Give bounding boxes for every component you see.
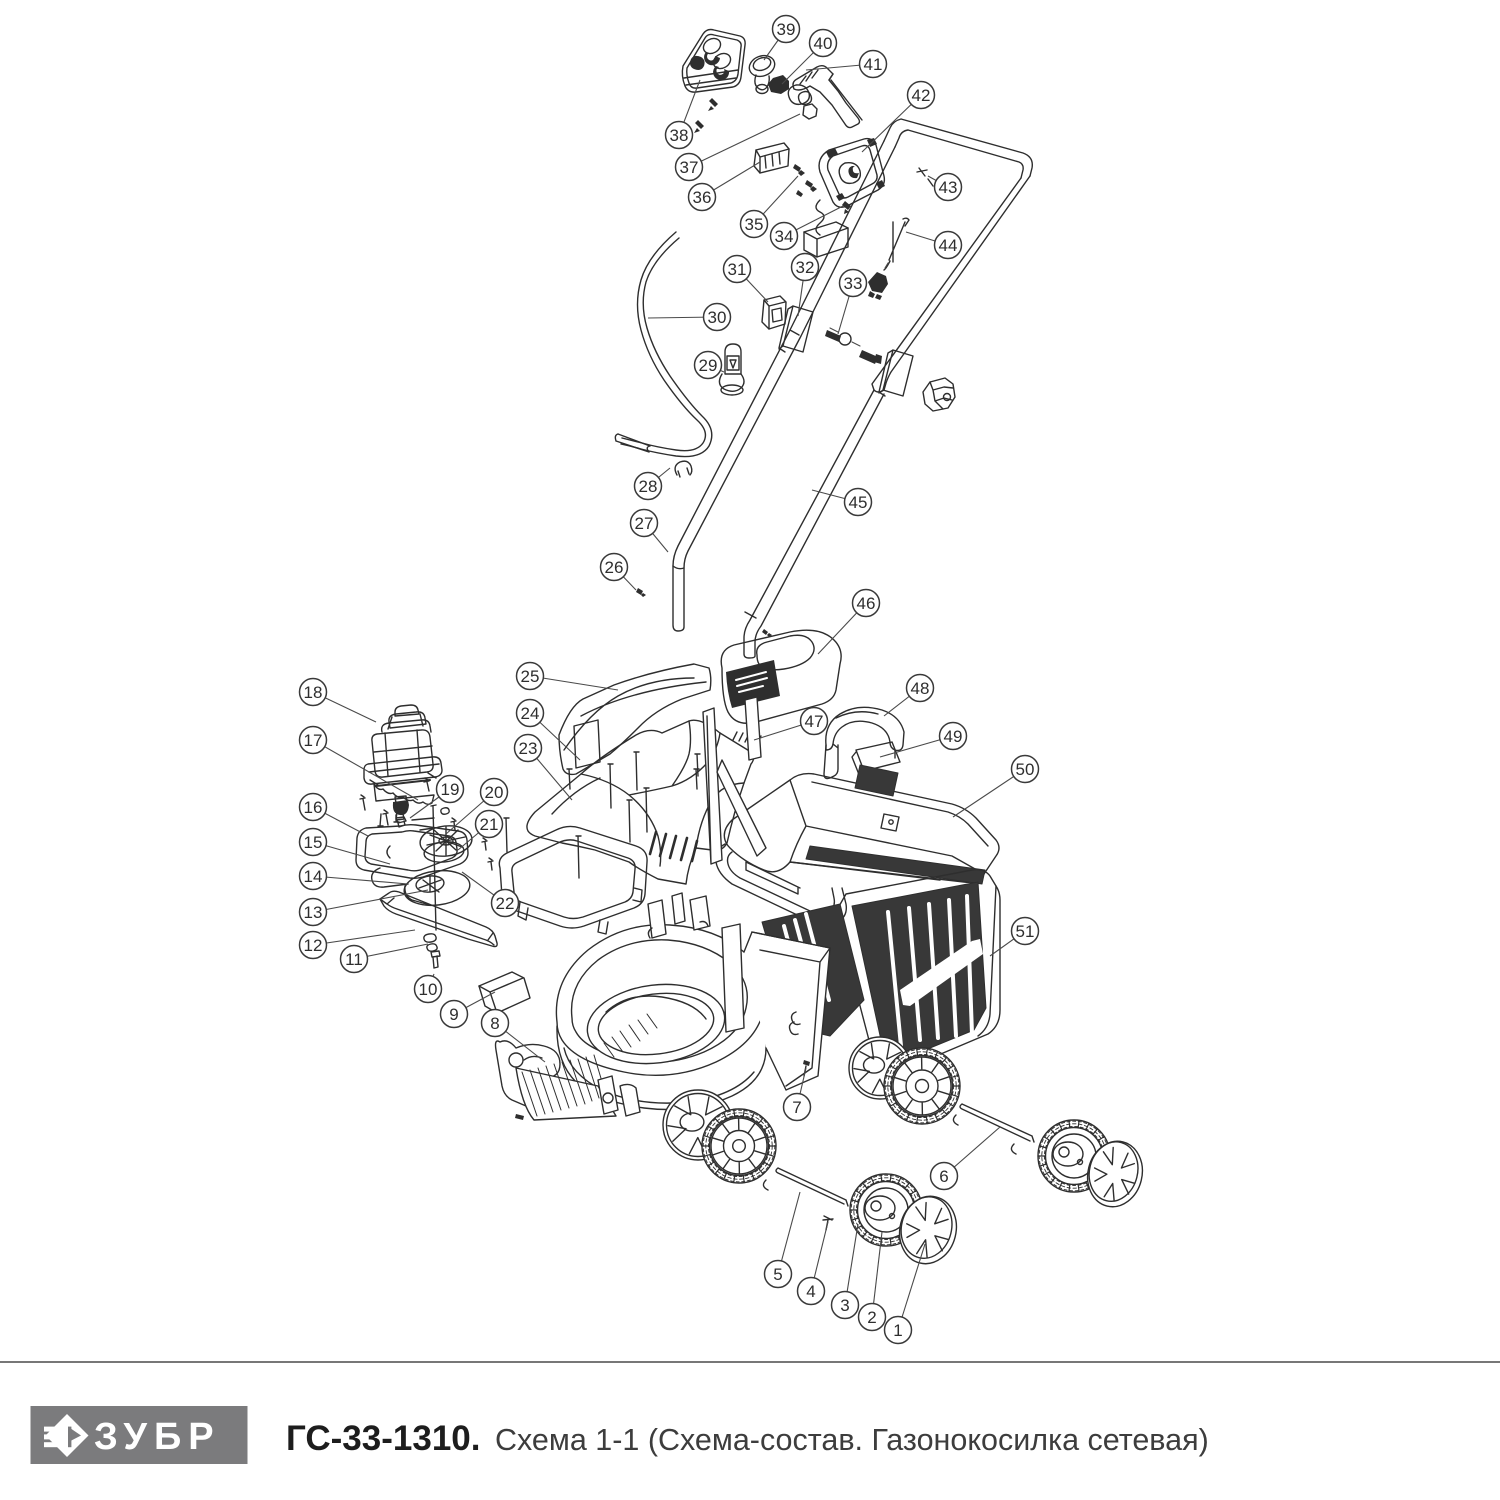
svg-text:43: 43 — [939, 178, 958, 197]
svg-text:4: 4 — [806, 1282, 815, 1301]
svg-text:47: 47 — [805, 712, 824, 731]
svg-text:24: 24 — [521, 704, 540, 723]
svg-text:15: 15 — [304, 833, 323, 852]
svg-text:36: 36 — [693, 188, 712, 207]
svg-text:45: 45 — [849, 493, 868, 512]
svg-text:ГС-33-1310. Схема 1-1 (Схема-с: ГС-33-1310. Схема 1-1 (Схема-состав. Газ… — [286, 1419, 1209, 1458]
svg-text:ЗУБР: ЗУБР — [94, 1416, 221, 1458]
svg-text:20: 20 — [485, 783, 504, 802]
svg-text:25: 25 — [521, 667, 540, 686]
svg-text:46: 46 — [857, 594, 876, 613]
svg-text:19: 19 — [441, 780, 460, 799]
svg-text:40: 40 — [814, 34, 833, 53]
svg-text:10: 10 — [419, 980, 438, 999]
svg-text:32: 32 — [796, 258, 815, 277]
svg-text:29: 29 — [699, 356, 718, 375]
svg-text:12: 12 — [304, 936, 323, 955]
svg-text:42: 42 — [912, 86, 931, 105]
svg-text:3: 3 — [840, 1296, 849, 1315]
svg-text:50: 50 — [1016, 760, 1035, 779]
svg-text:39: 39 — [777, 20, 796, 39]
svg-text:14: 14 — [304, 867, 323, 886]
svg-text:21: 21 — [480, 815, 499, 834]
svg-text:48: 48 — [911, 679, 930, 698]
svg-text:9: 9 — [449, 1005, 458, 1024]
svg-text:51: 51 — [1016, 922, 1035, 941]
svg-text:13: 13 — [304, 903, 323, 922]
svg-text:22: 22 — [496, 894, 515, 913]
svg-text:16: 16 — [304, 798, 323, 817]
svg-text:17: 17 — [304, 731, 323, 750]
svg-text:44: 44 — [939, 236, 958, 255]
svg-text:8: 8 — [490, 1014, 499, 1033]
svg-text:27: 27 — [635, 514, 654, 533]
svg-text:2: 2 — [867, 1308, 876, 1327]
svg-text:28: 28 — [639, 477, 658, 496]
svg-text:41: 41 — [864, 55, 883, 74]
svg-text:33: 33 — [844, 274, 863, 293]
svg-text:5: 5 — [773, 1265, 782, 1284]
svg-text:35: 35 — [745, 215, 764, 234]
svg-text:23: 23 — [519, 739, 538, 758]
svg-text:49: 49 — [944, 727, 963, 746]
svg-text:7: 7 — [792, 1098, 801, 1117]
svg-text:6: 6 — [939, 1167, 948, 1186]
svg-text:38: 38 — [670, 126, 689, 145]
svg-text:26: 26 — [605, 558, 624, 577]
svg-text:31: 31 — [728, 260, 747, 279]
svg-text:37: 37 — [680, 158, 699, 177]
svg-text:11: 11 — [345, 950, 363, 969]
svg-text:1: 1 — [893, 1321, 902, 1340]
svg-text:30: 30 — [708, 308, 727, 327]
svg-text:18: 18 — [304, 683, 323, 702]
svg-text:34: 34 — [775, 227, 794, 246]
